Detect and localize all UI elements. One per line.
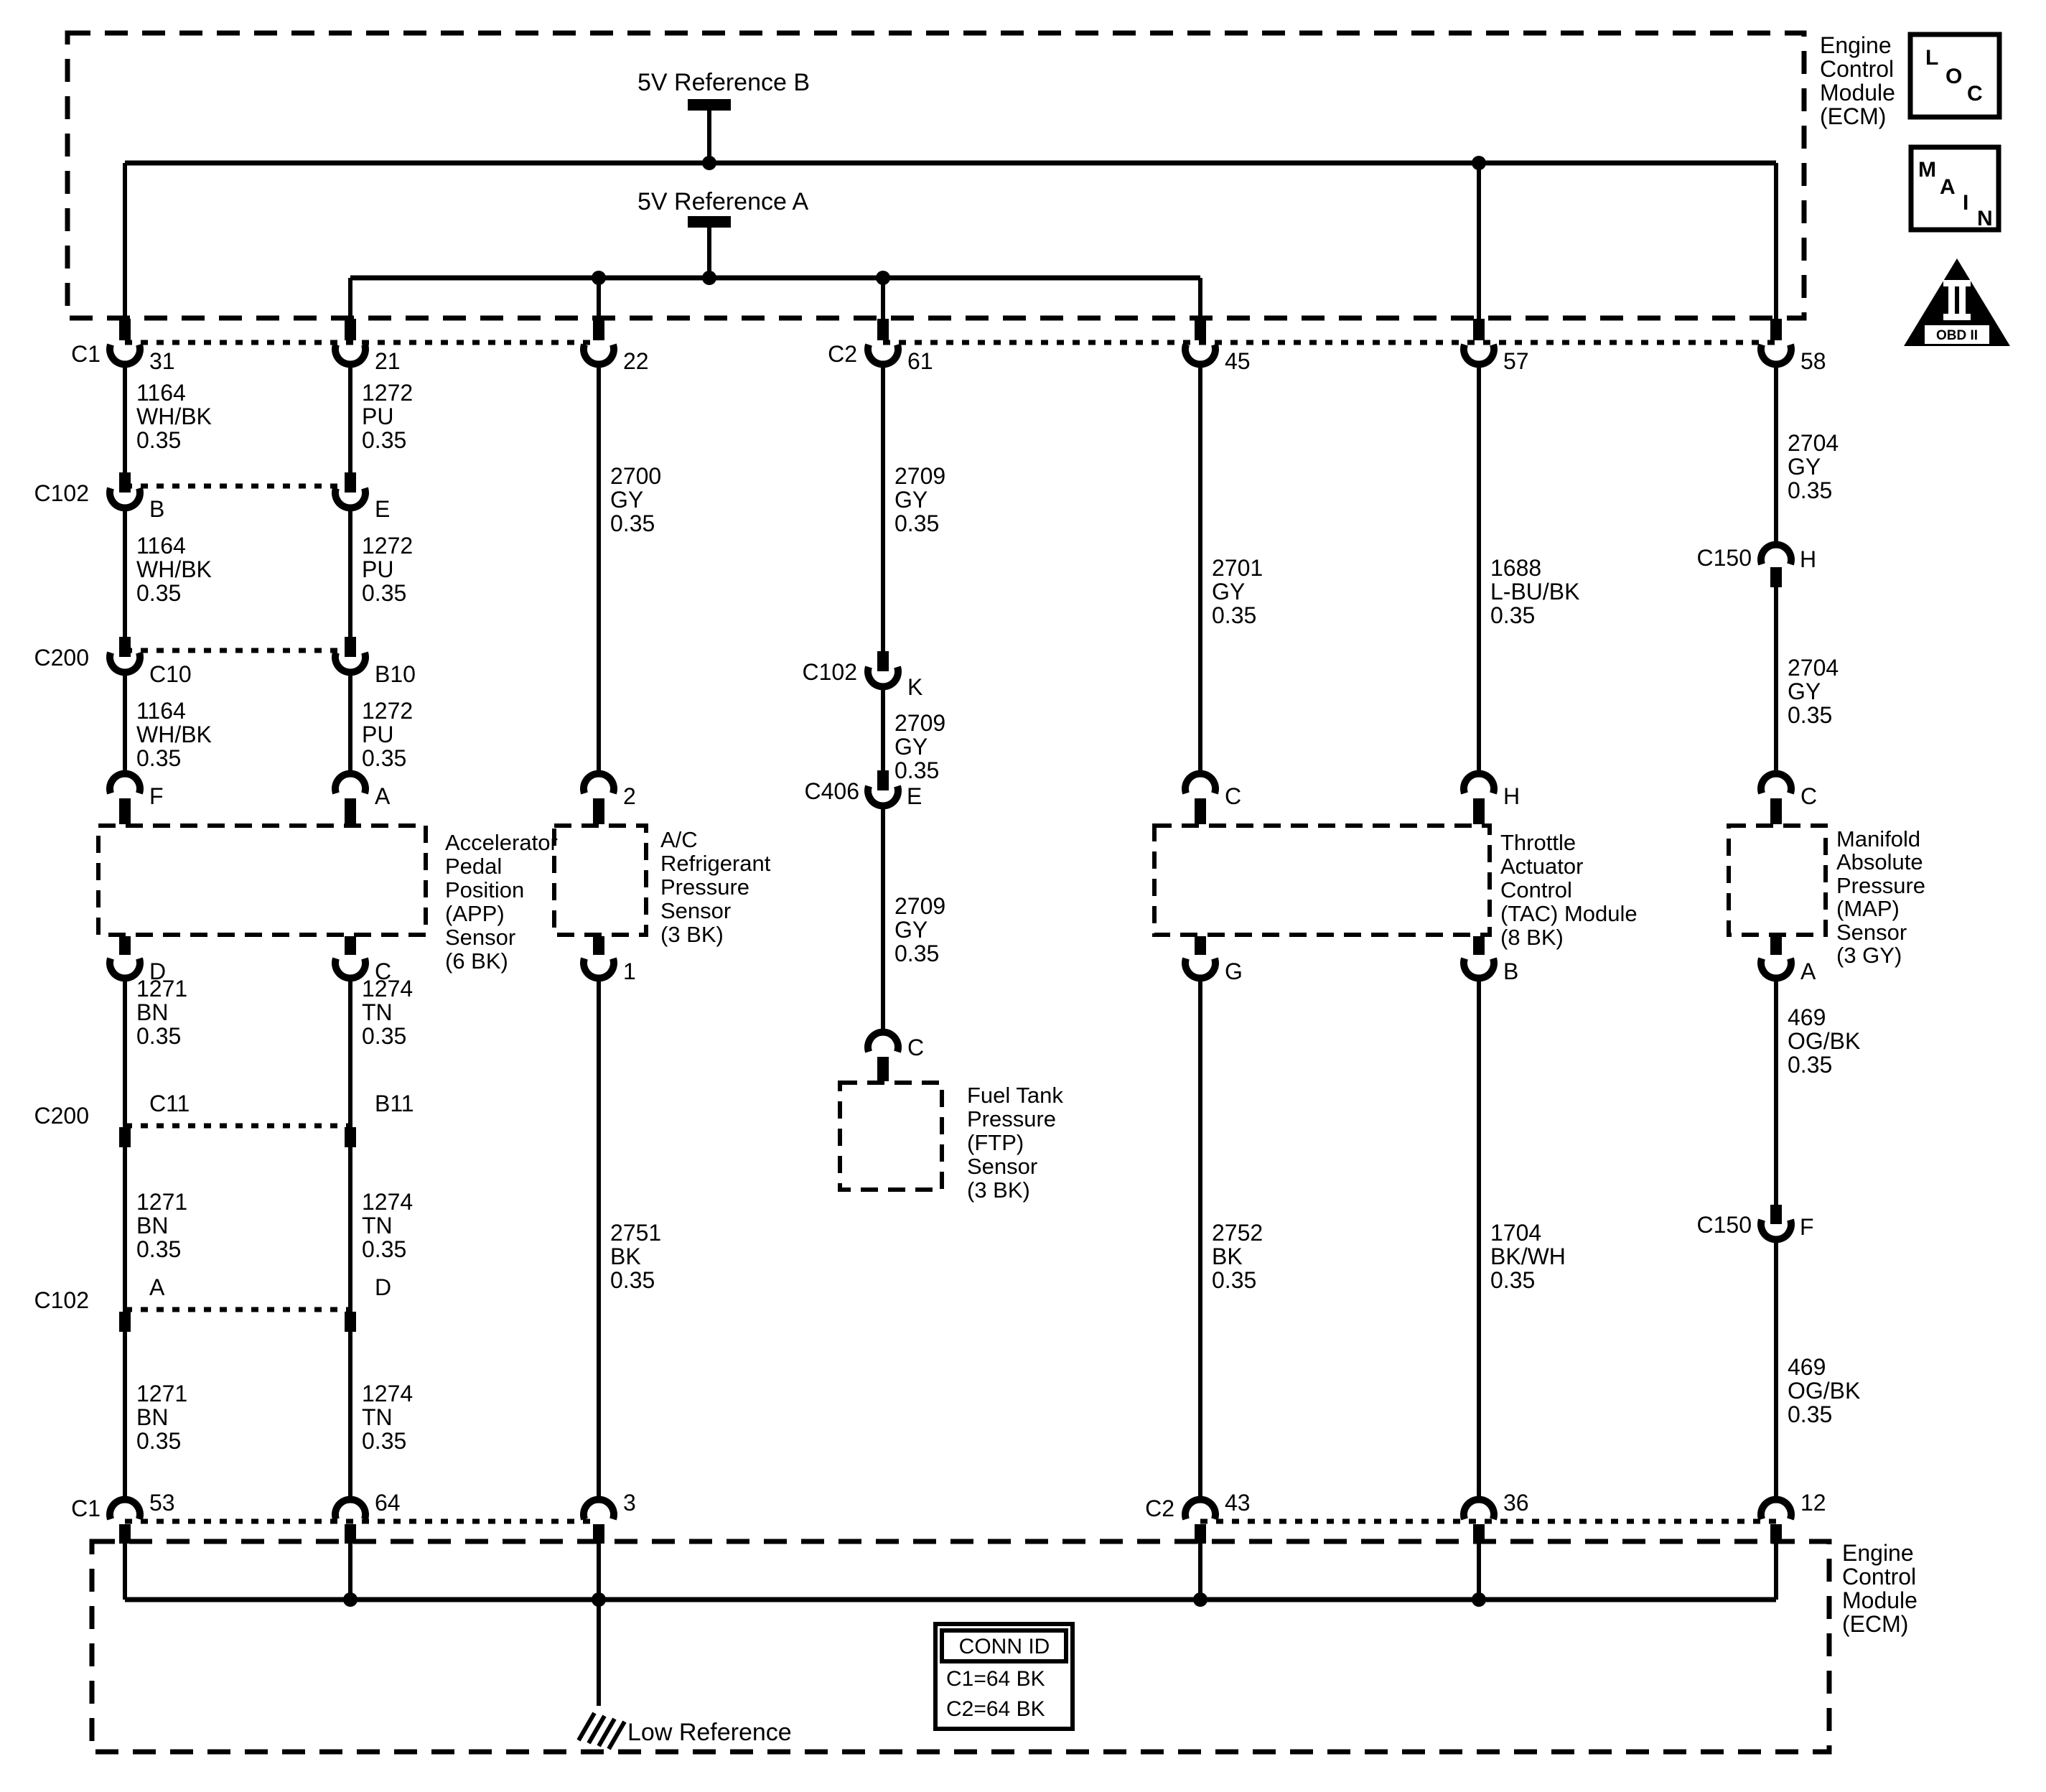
wire-label: BN xyxy=(136,1404,168,1430)
map-label-line: (MAP) xyxy=(1836,896,1900,921)
wire-label: OG/BK xyxy=(1788,1028,1860,1054)
pin-letter: B xyxy=(149,496,164,522)
wire-label: 0.35 xyxy=(1490,602,1535,628)
pin-letter: 2 xyxy=(623,783,636,809)
ac-pressure-sensor-box xyxy=(554,826,646,935)
wire-label: 1164 xyxy=(136,380,186,406)
connector-terminal-arc xyxy=(1185,1500,1215,1519)
map-label-line: Manifold xyxy=(1836,826,1920,851)
loc-letter: L xyxy=(1925,46,1938,70)
wire-label: GY xyxy=(1788,454,1821,480)
wire-label: L-BU/BK xyxy=(1490,579,1579,605)
wire-label: 1274 xyxy=(362,1381,413,1406)
connector-label: C200 xyxy=(34,645,90,671)
wire-label: WH/BK xyxy=(136,722,212,747)
wire-label: 1704 xyxy=(1490,1220,1541,1246)
obd2-label: OBD II xyxy=(1936,328,1978,343)
tac-label-line: Actuator xyxy=(1500,854,1583,879)
junction-dot xyxy=(702,156,716,170)
connector-terminal-arc xyxy=(335,1500,365,1519)
wire-label: 1688 xyxy=(1490,555,1541,581)
wiring-diagram: CONN ID C1=64 BK C2=64 BK L O C M A I N … xyxy=(0,0,2046,1792)
junction-dot xyxy=(592,271,606,285)
wire-label: GY xyxy=(1212,579,1245,605)
pin-letter: C xyxy=(907,1035,924,1060)
ac-label-line: A/C xyxy=(660,827,698,852)
wire-label: 0.35 xyxy=(894,510,939,536)
wire-label: 2701 xyxy=(1212,555,1263,581)
app-label-line: Sensor xyxy=(445,925,515,950)
pin-number: 53 xyxy=(149,1490,175,1516)
tac-label-line: Control xyxy=(1500,877,1572,902)
pin-number: 45 xyxy=(1225,348,1251,374)
wire-label: 469 xyxy=(1788,1004,1826,1030)
tac-module-box xyxy=(1154,826,1490,935)
pin-number: 64 xyxy=(375,1490,401,1516)
connector-terminal-arc xyxy=(868,345,898,364)
wire-label: 1274 xyxy=(362,1189,413,1215)
wire-label: BK xyxy=(610,1243,641,1269)
pin-number: 36 xyxy=(1503,1490,1529,1516)
wire-label: 1271 xyxy=(136,1381,187,1406)
connector-label: C406 xyxy=(805,778,860,804)
ecm-top-label-line: Module xyxy=(1820,80,1895,106)
connector-terminal-arc xyxy=(1464,774,1494,793)
pin-letter: G xyxy=(1225,958,1243,984)
connector-terminal-arc xyxy=(1464,345,1494,364)
ecm-bottom-label-line: (ECM) xyxy=(1842,1611,1908,1637)
ecm-top-label: Engine Control Module (ECM) xyxy=(1820,32,1895,129)
wire-label: 1272 xyxy=(362,533,413,559)
wire-label: 0.35 xyxy=(1212,602,1256,628)
junction-dot xyxy=(1193,1592,1207,1607)
wire-label: BK/WH xyxy=(1490,1243,1566,1269)
wire-label: BN xyxy=(136,1213,168,1238)
connector-label-c2-bottom: C2 xyxy=(1145,1495,1174,1521)
conn-id-row: C2=64 BK xyxy=(946,1697,1045,1721)
app-label-line: Pedal xyxy=(445,854,502,879)
wire-label: 0.35 xyxy=(1788,477,1832,503)
connector-label-c1-bottom: C1 xyxy=(71,1495,101,1521)
connector-terminal-arc xyxy=(1761,958,1791,978)
connector-label: C150 xyxy=(1697,1212,1752,1238)
wire-label: GY xyxy=(894,487,928,513)
wire-label: TN xyxy=(362,999,393,1025)
wire-label: PU xyxy=(362,722,393,747)
pin-letter: C11 xyxy=(149,1091,190,1116)
app-label-line: Accelerator xyxy=(445,830,558,855)
pin-letter: A xyxy=(149,1274,165,1300)
wire-label: GY xyxy=(1788,678,1821,704)
connector-terminal-arc xyxy=(584,774,614,793)
wire-label: 2709 xyxy=(894,893,945,919)
junction-dot xyxy=(702,271,716,285)
ac-label-line: (3 BK) xyxy=(660,922,724,947)
connector-terminal-arc xyxy=(110,774,140,793)
map-sensor-box xyxy=(1729,826,1826,935)
junction-dot xyxy=(343,1592,358,1607)
wire-label: 0.35 xyxy=(610,510,655,536)
junction-dot xyxy=(1472,156,1486,170)
wire-label: 0.35 xyxy=(136,1428,181,1454)
connector-terminal-arc xyxy=(110,345,140,364)
pin-letter: B10 xyxy=(375,661,416,687)
wire-label: 2752 xyxy=(1212,1220,1263,1246)
ac-label-line: Pressure xyxy=(660,874,749,900)
wire-label: 0.35 xyxy=(894,941,939,966)
pin-letter: H xyxy=(1800,546,1816,572)
connector-terminal-arc xyxy=(584,345,614,364)
pin-number: 12 xyxy=(1800,1490,1826,1516)
ac-label-line: Refrigerant xyxy=(660,851,771,876)
pin-number: 61 xyxy=(907,348,933,374)
connector-terminal-arc xyxy=(335,958,365,978)
obd2-badge: OBD II xyxy=(1904,258,2010,346)
connector-terminal-arc xyxy=(1761,774,1791,793)
wire-label: PU xyxy=(362,556,393,582)
pin-letter: C xyxy=(1800,783,1817,809)
pin-letter: E xyxy=(375,496,390,522)
wire-label: 0.35 xyxy=(136,1023,181,1049)
connector-terminal-arc xyxy=(1464,958,1494,978)
connector-label: C102 xyxy=(803,659,858,685)
connector-terminal-arc xyxy=(1464,1500,1494,1519)
connector-label: C200 xyxy=(34,1103,90,1129)
pin-letter: A xyxy=(1800,958,1816,984)
wire-label: 0.35 xyxy=(136,580,181,606)
wire-label: 0.35 xyxy=(362,1428,406,1454)
pin-letter: B11 xyxy=(375,1091,414,1116)
connector-terminal-arc xyxy=(110,958,140,978)
connector-label-c2-top: C2 xyxy=(828,341,857,367)
wire-label: TN xyxy=(362,1404,393,1430)
ftp-sensor-box xyxy=(840,1083,942,1190)
wire-label: 0.35 xyxy=(136,1236,181,1262)
pin-letter: C xyxy=(375,958,391,984)
connector-label: C102 xyxy=(34,480,90,506)
pin-letter: D xyxy=(149,958,166,984)
map-label-line: Sensor xyxy=(1836,920,1907,945)
pin-number: 57 xyxy=(1503,348,1529,374)
pin-number: 31 xyxy=(149,348,175,374)
wire-label: 0.35 xyxy=(1212,1267,1256,1293)
app-label-line: (6 BK) xyxy=(445,948,508,974)
pin-letter: H xyxy=(1503,783,1520,809)
pin-number: 21 xyxy=(375,348,401,374)
connector-terminal-arc xyxy=(1761,345,1791,364)
conn-id-table: CONN ID C1=64 BK C2=64 BK xyxy=(935,1624,1073,1729)
ecm-bottom-label: Engine Control Module (ECM) xyxy=(1842,1540,1917,1637)
chassis-ground-icon xyxy=(579,1713,625,1749)
low-reference-label: Low Reference xyxy=(627,1719,792,1746)
connector-terminal-arc xyxy=(335,345,365,364)
wire-label: BK xyxy=(1212,1243,1243,1269)
app-label-line: Position xyxy=(445,877,524,902)
pin-letter: K xyxy=(907,674,922,700)
wire-label: 0.35 xyxy=(136,427,181,453)
ecm-top-box xyxy=(67,33,1804,318)
wire-label: 1272 xyxy=(362,698,413,724)
pin-letter: D xyxy=(375,1274,391,1300)
wire-label: 1164 xyxy=(136,698,186,724)
wiring-diagram-page: CONN ID C1=64 BK C2=64 BK L O C M A I N … xyxy=(0,0,2046,1792)
connector-terminal-arc xyxy=(1761,1500,1791,1519)
ecm-top-label-line: Engine xyxy=(1820,32,1892,58)
main-letter: N xyxy=(1977,207,1993,230)
main-letter: A xyxy=(1940,175,1956,199)
wire-label: 0.35 xyxy=(362,427,406,453)
map-label-line: (3 GY) xyxy=(1836,943,1902,968)
pin-letter: F xyxy=(1800,1214,1814,1240)
loc-letter: C xyxy=(1967,82,1983,106)
wire-label: WH/BK xyxy=(136,403,212,429)
ftp-label-line: (3 BK) xyxy=(967,1177,1030,1203)
pin-letter: C10 xyxy=(149,661,192,687)
junction-dot xyxy=(592,1592,606,1607)
pin-letter: A xyxy=(375,783,391,809)
wire-label: BN xyxy=(136,999,168,1025)
pin-letter: 1 xyxy=(623,958,636,984)
wire-label: 0.35 xyxy=(1788,1401,1832,1427)
wire-label: PU xyxy=(362,403,393,429)
ecm-bottom-label-line: Module xyxy=(1842,1587,1917,1613)
wire-label: GY xyxy=(894,917,928,943)
wire-label: 2700 xyxy=(610,463,661,489)
wire-label: 0.35 xyxy=(894,757,939,783)
pin-letter: C xyxy=(1225,783,1241,809)
wire-label: GY xyxy=(610,487,643,513)
ftp-label-line: Sensor xyxy=(967,1154,1037,1179)
wire-label: 2751 xyxy=(610,1220,661,1246)
connector-terminal-arc xyxy=(584,1500,614,1519)
tac-label-line: Throttle xyxy=(1500,830,1576,855)
ref-a-label: 5V Reference A xyxy=(637,188,808,215)
ecm-top-label-line: (ECM) xyxy=(1820,103,1886,129)
ecm-top-label-line: Control xyxy=(1820,56,1894,82)
connector-terminal-arc xyxy=(584,958,614,978)
wire-label: 0.35 xyxy=(1788,1052,1832,1078)
wire-label: 2709 xyxy=(894,463,945,489)
wire-label: 2704 xyxy=(1788,430,1839,456)
pin-letter: B xyxy=(1503,958,1518,984)
wire-label: 0.35 xyxy=(362,580,406,606)
connector-terminal-arc xyxy=(1185,774,1215,793)
connector-terminal-arc xyxy=(335,774,365,793)
wire-label: 2704 xyxy=(1788,655,1839,681)
wire-label: 0.35 xyxy=(1490,1267,1535,1293)
pin-letter: E xyxy=(907,783,922,809)
connector-terminal-arc xyxy=(1185,345,1215,364)
map-label-line: Pressure xyxy=(1836,873,1925,898)
conn-id-title: CONN ID xyxy=(959,1635,1050,1658)
main-badge: M A I N xyxy=(1911,147,1999,230)
wire-label: TN xyxy=(362,1213,393,1238)
ecm-bottom-label-line: Engine xyxy=(1842,1540,1914,1566)
connector-label: C102 xyxy=(34,1287,90,1313)
connector-terminal-arc xyxy=(868,1032,898,1052)
pin-number: 43 xyxy=(1225,1490,1251,1516)
wire-label: OG/BK xyxy=(1788,1378,1860,1404)
wire-label: WH/BK xyxy=(136,556,212,582)
connector-terminal-arc xyxy=(1185,958,1215,978)
wire-label: 1272 xyxy=(362,380,413,406)
connector-terminal-arc xyxy=(110,1500,140,1519)
ftp-label-line: Pressure xyxy=(967,1106,1056,1131)
main-letter: I xyxy=(1963,191,1968,215)
ftp-label-line: Fuel Tank xyxy=(967,1083,1063,1108)
app-label-line: (APP) xyxy=(445,901,505,926)
sensor-labels: Accelerator Pedal Position (APP) Sensor … xyxy=(445,826,1925,1203)
wire-label: GY xyxy=(894,734,928,760)
junction-dot xyxy=(876,271,890,285)
tac-label-line: (8 BK) xyxy=(1500,925,1564,950)
wire-label: 2709 xyxy=(894,710,945,736)
wire-label: 0.35 xyxy=(362,745,406,771)
wire-label: 469 xyxy=(1788,1354,1826,1380)
loc-badge: L O C xyxy=(1910,34,1999,117)
wire-label: 0.35 xyxy=(362,1023,406,1049)
pin-number: 3 xyxy=(623,1490,636,1516)
junction-dot xyxy=(1472,1592,1486,1607)
wire-label: 0.35 xyxy=(1788,702,1832,728)
map-label-line: Absolute xyxy=(1836,849,1923,874)
wire-label: 1164 xyxy=(136,533,186,559)
loc-letter: O xyxy=(1945,65,1962,88)
ac-label-line: Sensor xyxy=(660,898,731,923)
pin-number: 58 xyxy=(1800,348,1826,374)
tac-label-line: (TAC) Module xyxy=(1500,901,1638,926)
conn-id-row: C1=64 BK xyxy=(946,1667,1045,1691)
connector-label: C150 xyxy=(1697,545,1752,571)
app-sensor-box xyxy=(98,826,426,935)
wire-label: 0.35 xyxy=(362,1236,406,1262)
main-letter: M xyxy=(1918,158,1936,182)
wire-label: 0.35 xyxy=(136,745,181,771)
ecm-bottom-label-line: Control xyxy=(1842,1564,1916,1590)
ftp-label-line: (FTP) xyxy=(967,1130,1024,1155)
pin-number: 22 xyxy=(623,348,649,374)
pin-letter: F xyxy=(149,783,164,809)
connector-label-c1-top: C1 xyxy=(71,341,101,367)
ref-b-label: 5V Reference B xyxy=(637,69,810,96)
connector-terminal-arc xyxy=(1761,545,1791,564)
wire-label: 0.35 xyxy=(610,1267,655,1293)
wire-label: 1271 xyxy=(136,1189,187,1215)
